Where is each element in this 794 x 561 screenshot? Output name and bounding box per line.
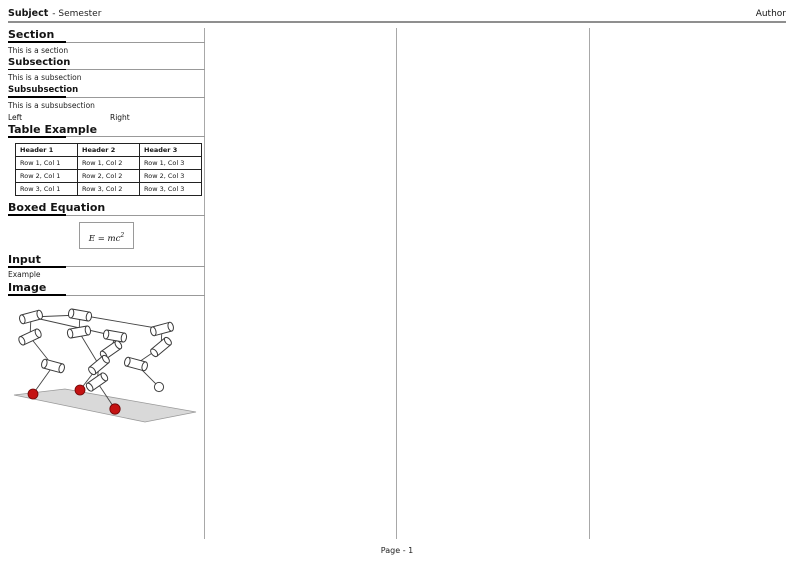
table-example-title-rule — [8, 136, 205, 139]
table-cell: Row 3, Col 1 — [16, 183, 78, 196]
section-body: This is a section — [8, 47, 205, 55]
robot-joint-cylinder — [103, 329, 127, 342]
equation-text: E = mc2 — [89, 234, 124, 244]
semester-label: - Semester — [52, 9, 101, 19]
table-row: Row 3, Col 1 Row 3, Col 2 Row 3, Col 3 — [16, 183, 202, 196]
subject-label: Subject — [8, 8, 48, 19]
robot-joint-cylinder — [85, 371, 109, 392]
two-col-left-label: Left — [8, 114, 110, 122]
robot-foot — [28, 389, 38, 399]
table-row: Row 1, Col 1 Row 1, Col 2 Row 1, Col 3 — [16, 157, 202, 170]
boxed-equation-title-rule — [8, 215, 205, 218]
input-body: Example — [8, 271, 205, 279]
column-separator-2 — [396, 28, 397, 539]
robot-joint-cylinder — [124, 356, 149, 371]
cheatsheet-page: Subject- Semester Author Section This is… — [0, 0, 794, 561]
table-cell: Row 2, Col 3 — [140, 170, 202, 183]
robot-foot — [110, 403, 120, 413]
example-table: Header 1 Header 2 Header 3 Row 1, Col 1 … — [15, 143, 202, 196]
table-cell: Row 2, Col 1 — [16, 170, 78, 183]
equation-box: E = mc2 — [79, 222, 134, 249]
robot-joint-cylinder — [67, 325, 91, 338]
column-separator-3 — [589, 28, 590, 539]
subsection-body: This is a subsection — [8, 74, 205, 82]
section-title: Section — [8, 29, 205, 40]
robot-joint-cylinder — [19, 309, 44, 324]
subsubsection-body: This is a subsubsection — [8, 102, 205, 110]
subsubsection-title: Subsubsection — [8, 86, 205, 95]
section-title-rule — [8, 42, 205, 45]
table-cell: Row 1, Col 2 — [78, 157, 140, 170]
table-cell: Row 3, Col 2 — [78, 183, 140, 196]
robot-joint-cylinder — [41, 358, 66, 373]
robot-free-foot — [154, 382, 163, 391]
equation-container: E = mc2 — [8, 222, 205, 249]
table-example-title: Table Example — [8, 124, 205, 135]
content-column-1: Section This is a section Subsection Thi… — [8, 27, 205, 430]
subsubsection-title-rule — [8, 97, 205, 100]
robot-joint-cylinder — [87, 354, 111, 376]
image-title-rule — [8, 295, 205, 298]
two-col-right-label: Right — [110, 114, 130, 122]
image-title: Image — [8, 282, 205, 293]
table-cell: Row 1, Col 1 — [16, 157, 78, 170]
table-header-cell: Header 3 — [140, 144, 202, 157]
author-label: Author — [756, 9, 786, 19]
robot-foot — [75, 385, 85, 395]
input-title-rule — [8, 266, 205, 269]
table-header-cell: Header 2 — [78, 144, 140, 157]
header-rule — [8, 21, 786, 23]
header-title: Subject- Semester — [8, 8, 101, 19]
page-number: Page - 1 — [0, 546, 794, 555]
robot-kinematics-figure — [8, 300, 202, 430]
subsection-title-rule — [8, 69, 205, 72]
robot-joint-cylinder — [150, 321, 175, 336]
table-cell: Row 2, Col 2 — [78, 170, 140, 183]
subsection-title: Subsection — [8, 58, 205, 68]
table-row: Row 2, Col 1 Row 2, Col 2 Row 2, Col 3 — [16, 170, 202, 183]
input-title: Input — [8, 254, 205, 265]
table-header-row: Header 1 Header 2 Header 3 — [16, 144, 202, 157]
table-cell: Row 3, Col 3 — [140, 183, 202, 196]
two-column-demo: Left Right — [8, 114, 205, 122]
table-cell: Row 1, Col 3 — [140, 157, 202, 170]
boxed-equation-title: Boxed Equation — [8, 202, 205, 213]
equation-exponent: 2 — [120, 232, 124, 239]
robot-joint-cylinder — [68, 308, 92, 321]
table-header-cell: Header 1 — [16, 144, 78, 157]
page-header: Subject- Semester Author — [8, 8, 786, 19]
